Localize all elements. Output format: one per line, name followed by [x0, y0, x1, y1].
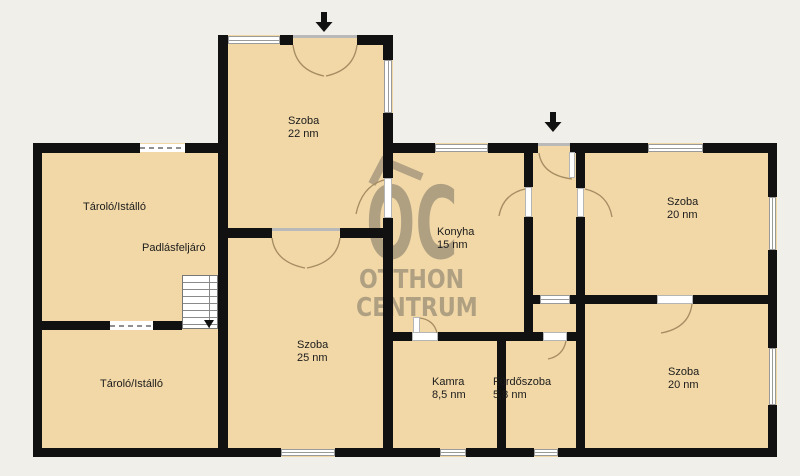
- wall: [383, 35, 393, 60]
- door-leaf: [525, 187, 532, 217]
- wall: [153, 321, 182, 330]
- room-name: Szoba: [667, 196, 698, 209]
- window: [648, 144, 703, 152]
- room-label-szoba-20-bottom: Szoba 20 nm: [668, 366, 699, 391]
- door-opening-line: [538, 143, 570, 146]
- room-label-furdoszoba: Fürdőszoba 5,8 nm: [493, 376, 551, 401]
- wall: [218, 35, 228, 457]
- room-label-kamra: Kamra 8,5 nm: [432, 376, 466, 401]
- room-name: Tároló/Istálló: [83, 201, 146, 214]
- room-label-szoba-22: Szoba 22 nm: [288, 115, 319, 140]
- room-name: Padlásfeljáró: [142, 242, 206, 255]
- window: [384, 60, 392, 113]
- room-area: 5,8 nm: [493, 389, 551, 402]
- wall: [703, 143, 777, 153]
- wall: [576, 217, 585, 457]
- wall: [33, 143, 140, 153]
- wall: [558, 448, 777, 457]
- window: [769, 197, 776, 250]
- wall: [768, 143, 777, 197]
- room-area: 15 nm: [437, 239, 474, 252]
- room-name: Szoba: [297, 339, 328, 352]
- room-name: Fürdőszoba: [493, 376, 551, 389]
- room-area: 20 nm: [668, 379, 699, 392]
- door-leaf: [412, 332, 438, 341]
- window: [281, 449, 335, 456]
- room-name: Tároló/Istálló: [100, 378, 163, 391]
- room-label-szoba-20-top: Szoba 20 nm: [667, 196, 698, 221]
- wall: [524, 217, 533, 340]
- room-label-szoba-25: Szoba 25 nm: [297, 339, 328, 364]
- door-leaf: [657, 295, 693, 304]
- wall: [383, 218, 393, 457]
- room-name: Kamra: [432, 376, 466, 389]
- wall: [693, 295, 777, 304]
- entrance-arrow-icon: [316, 12, 333, 32]
- wall: [524, 143, 533, 187]
- entrance-arrow-icon: [545, 112, 562, 132]
- floor-middle-wing: [218, 35, 393, 457]
- door-leaf: [569, 152, 575, 178]
- wall: [768, 250, 777, 348]
- interior-opening: [540, 295, 570, 304]
- window: [435, 144, 488, 152]
- door-opening-line: [293, 35, 357, 38]
- door-leaf: [384, 178, 392, 218]
- window: [440, 449, 466, 456]
- room-label-padlasfeljaro: Padlásfeljáró: [142, 242, 206, 255]
- wall: [383, 113, 393, 178]
- wall: [466, 448, 534, 457]
- window-dashed: [140, 144, 185, 152]
- room-area: 8,5 nm: [432, 389, 466, 402]
- window: [534, 449, 558, 456]
- window: [228, 36, 280, 44]
- interior-opening-dashed: [110, 321, 153, 330]
- room-area: 22 nm: [288, 128, 319, 141]
- room-area: 25 nm: [297, 352, 328, 365]
- room-label-tarolo-bottom: Tároló/Istálló: [100, 378, 163, 391]
- wall: [33, 448, 281, 457]
- wall: [33, 321, 110, 330]
- wall: [768, 405, 777, 457]
- room-name: Szoba: [668, 366, 699, 379]
- room-area: 20 nm: [667, 209, 698, 222]
- room-label-konyha: Konyha 15 nm: [437, 226, 474, 251]
- floor-plan: OC OTTHON CENTRUM: [0, 0, 800, 476]
- room-name: Szoba: [288, 115, 319, 128]
- staircase-down-arrow-icon: [204, 320, 214, 328]
- wall: [576, 143, 585, 188]
- door-leaf: [577, 188, 584, 217]
- room-label-tarolo-top: Tároló/Istálló: [83, 201, 146, 214]
- wall: [33, 143, 42, 457]
- door-opening-line: [272, 228, 340, 231]
- door-leaf: [413, 317, 420, 333]
- window: [769, 348, 776, 405]
- door-leaf: [543, 332, 567, 341]
- staircase: [182, 275, 218, 329]
- wall: [280, 35, 293, 45]
- room-name: Konyha: [437, 226, 474, 239]
